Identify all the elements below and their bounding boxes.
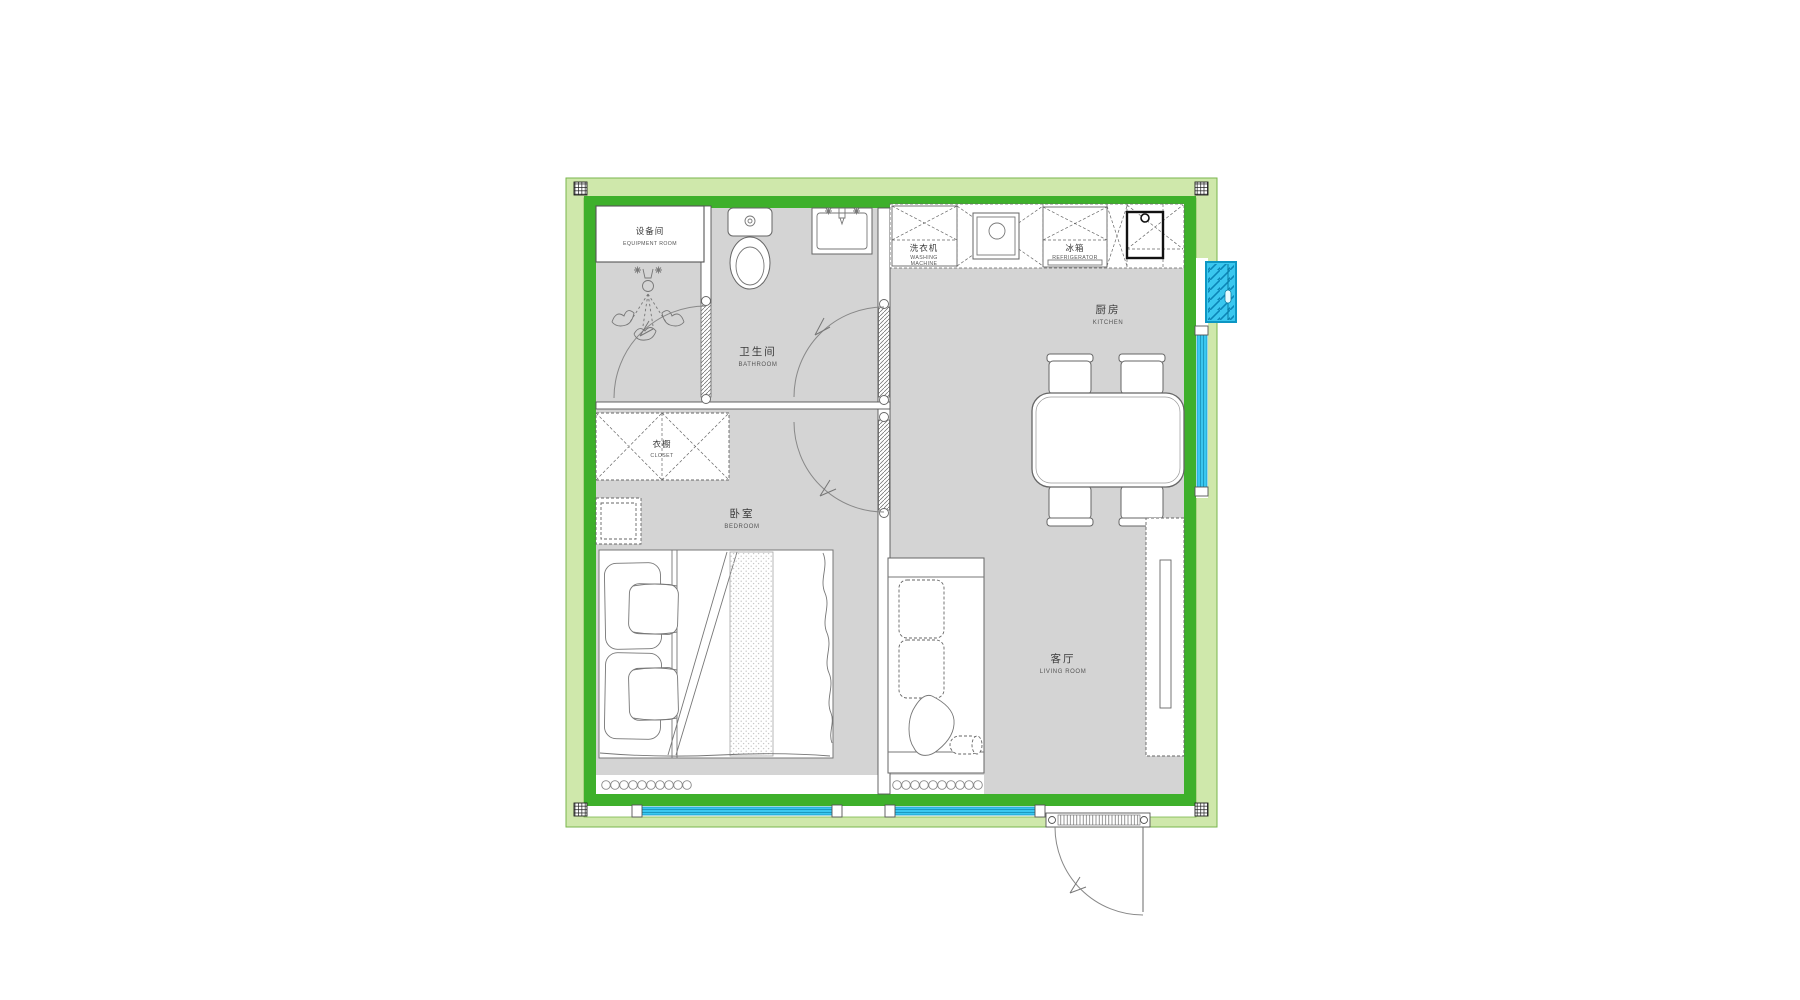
bed-frame: [599, 550, 833, 758]
nightstand: [596, 498, 641, 544]
bathroom-bedroom-wall: [596, 402, 890, 409]
closet-label-en: CLOSET: [650, 453, 674, 459]
bathroom-sink-basin: [812, 208, 872, 254]
closet: 衣橱 CLOSET: [596, 413, 729, 480]
living-room-label-zh: 客厅: [1051, 652, 1076, 665]
floor-plan-drawing: 设备间 EQUIPMENT ROOM 卫生间 BATHROOM 卧室 BEDRO…: [0, 0, 1800, 1000]
bathroom-door-pivot-bottom: [880, 396, 889, 405]
living-side-window: [1197, 332, 1207, 488]
sofa-cushion-2: [899, 640, 944, 698]
side-window-cap-bottom: [1195, 487, 1208, 496]
bed-pillow-bottom: [628, 667, 678, 720]
kitchen-counter: 洗衣机 WASHING MACHINE 冰箱 REFRIGERATOR: [890, 204, 1184, 268]
entrance-pivot-right: [1141, 817, 1148, 824]
bedroom-window: [642, 807, 832, 815]
dining-table: [1032, 393, 1184, 487]
equipment-room-label-en: EQUIPMENT ROOM: [623, 241, 677, 247]
bottom-windows: [632, 805, 1045, 817]
living-window-cap-right: [1035, 805, 1045, 817]
bedroom-window-cap-right: [832, 805, 842, 817]
dining-chair-bottom-left: [1049, 486, 1091, 519]
shower-tap-right-icon: [655, 267, 662, 274]
entrance-door: [1046, 813, 1150, 915]
refrigerator: 冰箱 REFRIGERATOR: [1043, 207, 1107, 267]
kitchen-sink-outer: [973, 213, 1019, 259]
sofa-roll-pillow-end: [972, 736, 982, 754]
dining-chair-bottom-left-back: [1047, 518, 1093, 526]
sofa: [888, 558, 984, 773]
tv-cabinet: [1146, 518, 1184, 756]
tv-panel: [1160, 560, 1171, 708]
entrance-door-leaf-closed: [1058, 815, 1140, 825]
equipment-room-label-zh: 设备间: [636, 226, 665, 236]
dining-chair-top-right: [1121, 361, 1163, 394]
bathroom-door-leaf: [879, 307, 890, 397]
floor-plan-canvas: 设备间 EQUIPMENT ROOM 卫生间 BATHROOM 卧室 BEDRO…: [0, 0, 1800, 1000]
entrance-door-arc: [1055, 827, 1143, 915]
bedroom-door-pivot-bottom: [880, 509, 889, 518]
shower-door-pivot-top: [702, 297, 711, 306]
corner-marker-bottom-right: [1195, 803, 1208, 816]
refrigerator-label-zh: 冰箱: [1065, 243, 1084, 253]
shower-door-pivot-bottom: [702, 395, 711, 404]
bedroom-window-strip: [596, 775, 878, 794]
bathroom-label-zh: 卫生间: [739, 345, 777, 358]
living-window-cap-left: [885, 805, 895, 817]
living-window: [895, 807, 1035, 815]
bed-runner-band: [730, 552, 773, 756]
corner-marker-bottom-left: [574, 803, 587, 816]
shower-tap-left-icon: [634, 267, 641, 274]
kitchen-window-handle: [1225, 290, 1231, 303]
bedroom-label-en: BEDROOM: [724, 524, 759, 530]
corner-marker-top-left: [574, 182, 587, 195]
closet-label-zh: 衣橱: [652, 439, 671, 449]
kitchen-sink: [973, 213, 1019, 259]
bed-pillow-top: [628, 583, 678, 634]
kitchen-label-en: KITCHEN: [1093, 320, 1124, 326]
bathroom-sink: [812, 208, 872, 255]
side-window-cap-top: [1195, 326, 1208, 335]
bedroom-label-zh: 卧室: [730, 507, 755, 520]
bathroom-tap-left-icon: [825, 208, 832, 215]
nightstand-inner: [601, 503, 636, 539]
dining-chair-bottom-right: [1121, 486, 1163, 519]
bed: [599, 550, 833, 758]
toilet-tank: [728, 208, 772, 236]
washing-machine: 洗衣机 WASHING MACHINE: [892, 206, 957, 267]
entrance-pivot-left: [1049, 817, 1056, 824]
corner-marker-top-right: [1195, 182, 1208, 195]
bathroom-label-en: BATHROOM: [738, 362, 777, 368]
dining-chair-top-left: [1049, 361, 1091, 394]
washing-machine-label-en2: MACHINE: [911, 261, 938, 267]
toilet: [728, 208, 772, 289]
bathroom-tap-right-icon: [853, 208, 860, 215]
kitchen-label-zh: 厨房: [1096, 303, 1121, 316]
bedroom-door-leaf: [879, 420, 890, 510]
bedroom-door-pivot-top: [880, 413, 889, 422]
sofa-cushion-1: [899, 580, 944, 638]
living-room-label-en: LIVING ROOM: [1040, 669, 1087, 675]
washing-machine-label-zh: 洗衣机: [910, 243, 939, 253]
shower-door-leaf: [701, 303, 711, 397]
stove-knob: [1141, 214, 1149, 222]
kitchen-casement-window: [1206, 262, 1236, 322]
bedroom-window-cap-left: [632, 805, 642, 817]
